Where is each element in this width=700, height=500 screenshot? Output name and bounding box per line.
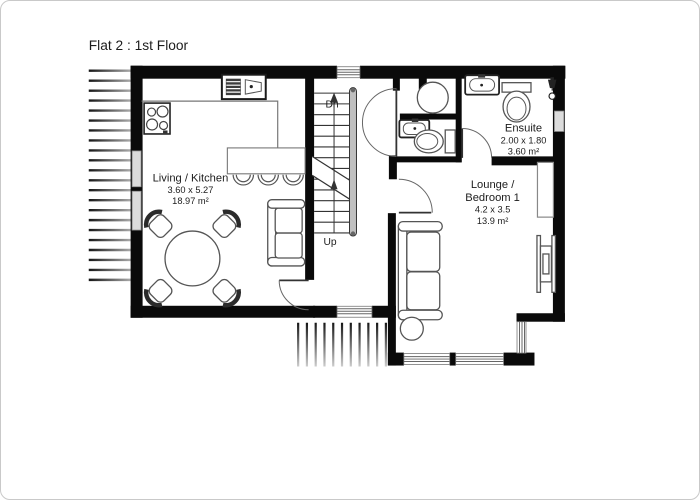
window-bedroom-1 [404, 354, 450, 365]
wall-bottom-living [131, 306, 315, 318]
handrail-post [351, 231, 355, 235]
room-area-ensuite: 3.60 m² [508, 146, 539, 156]
room-label-lounge-2: Bedroom 1 [465, 192, 520, 204]
hob-icon [144, 103, 170, 134]
wall-wc-bottom [393, 156, 462, 162]
ensuite-room [465, 74, 556, 122]
wardrobe-icon [537, 162, 553, 217]
wall-step-right [517, 313, 565, 321]
wall-wc-divider [400, 114, 457, 120]
door-wc-swing [362, 89, 396, 157]
room-area-lounge: 13.9 m² [477, 216, 508, 226]
deck-bottom [298, 323, 386, 367]
kitchen-sink-icon [222, 75, 266, 99]
handrail-post [351, 88, 355, 92]
stair-handrail [350, 88, 357, 236]
wall-bed-bottom-c [504, 353, 535, 366]
window-bedroom-side [517, 322, 526, 353]
dining-chair-icon [210, 276, 243, 309]
room-area-living: 18.97 m² [172, 196, 209, 206]
french-door [337, 306, 372, 317]
round-shower-icon [417, 82, 448, 113]
dining-chair-icon [142, 276, 175, 309]
stairs-down-label: Dn [325, 100, 338, 111]
kitchen [142, 75, 306, 185]
door-bedroom-swing [399, 179, 432, 212]
room-dims-lounge: 4.2 x 3.5 [475, 205, 511, 215]
toilet-icon [414, 130, 455, 153]
dining-table-icon [165, 231, 220, 286]
room-dims-living: 3.60 x 5.27 [168, 185, 214, 195]
floorplan-svg: Flat 2 : 1st Floor Living / Kitchen 3.60… [1, 1, 699, 499]
page-title: Flat 2 : 1st Floor [89, 38, 189, 53]
room-dims-ensuite: 2.00 x 1.80 [501, 135, 547, 145]
sofa-living-icon [268, 200, 305, 266]
side-table-icon [400, 317, 423, 340]
room-label-lounge-1: Lounge / [471, 179, 515, 191]
wall-stairs [305, 78, 314, 280]
bar-stool-icon [233, 175, 303, 185]
wash-basin-icon [465, 74, 499, 94]
floorplan-canvas: Flat 2 : 1st Floor Living / Kitchen 3.60… [0, 0, 700, 500]
sofa-bedroom-icon [398, 222, 442, 320]
window-ensuite [554, 111, 563, 131]
window-bedroom-2 [456, 354, 504, 365]
room-label-ensuite: Ensuite [505, 122, 542, 134]
deck-boards-icon [298, 323, 386, 367]
wall-bottom-landing-a [313, 306, 337, 318]
wall-wc-ensuite-divider [456, 78, 462, 163]
dining-chair-icon [142, 208, 175, 241]
window-left-2 [132, 191, 141, 230]
wall-bed-bottom-b [450, 353, 456, 366]
wall-divider-bedroom [388, 213, 396, 365]
stairs-up-label: Up [323, 237, 336, 248]
wall-bed-bottom-a [388, 353, 404, 366]
window-top [337, 67, 360, 78]
door-ensuite-swing [462, 128, 491, 157]
radiator-icon [537, 236, 555, 293]
wall-top-right [360, 66, 565, 79]
window-left-1 [132, 151, 141, 187]
living-furniture [142, 200, 304, 309]
room-label-living: Living / Kitchen [153, 172, 229, 184]
breakfast-bar [227, 148, 305, 174]
door-living-swing [279, 280, 308, 309]
toilet-icon [502, 83, 531, 122]
dining-chair-icon [210, 208, 243, 241]
